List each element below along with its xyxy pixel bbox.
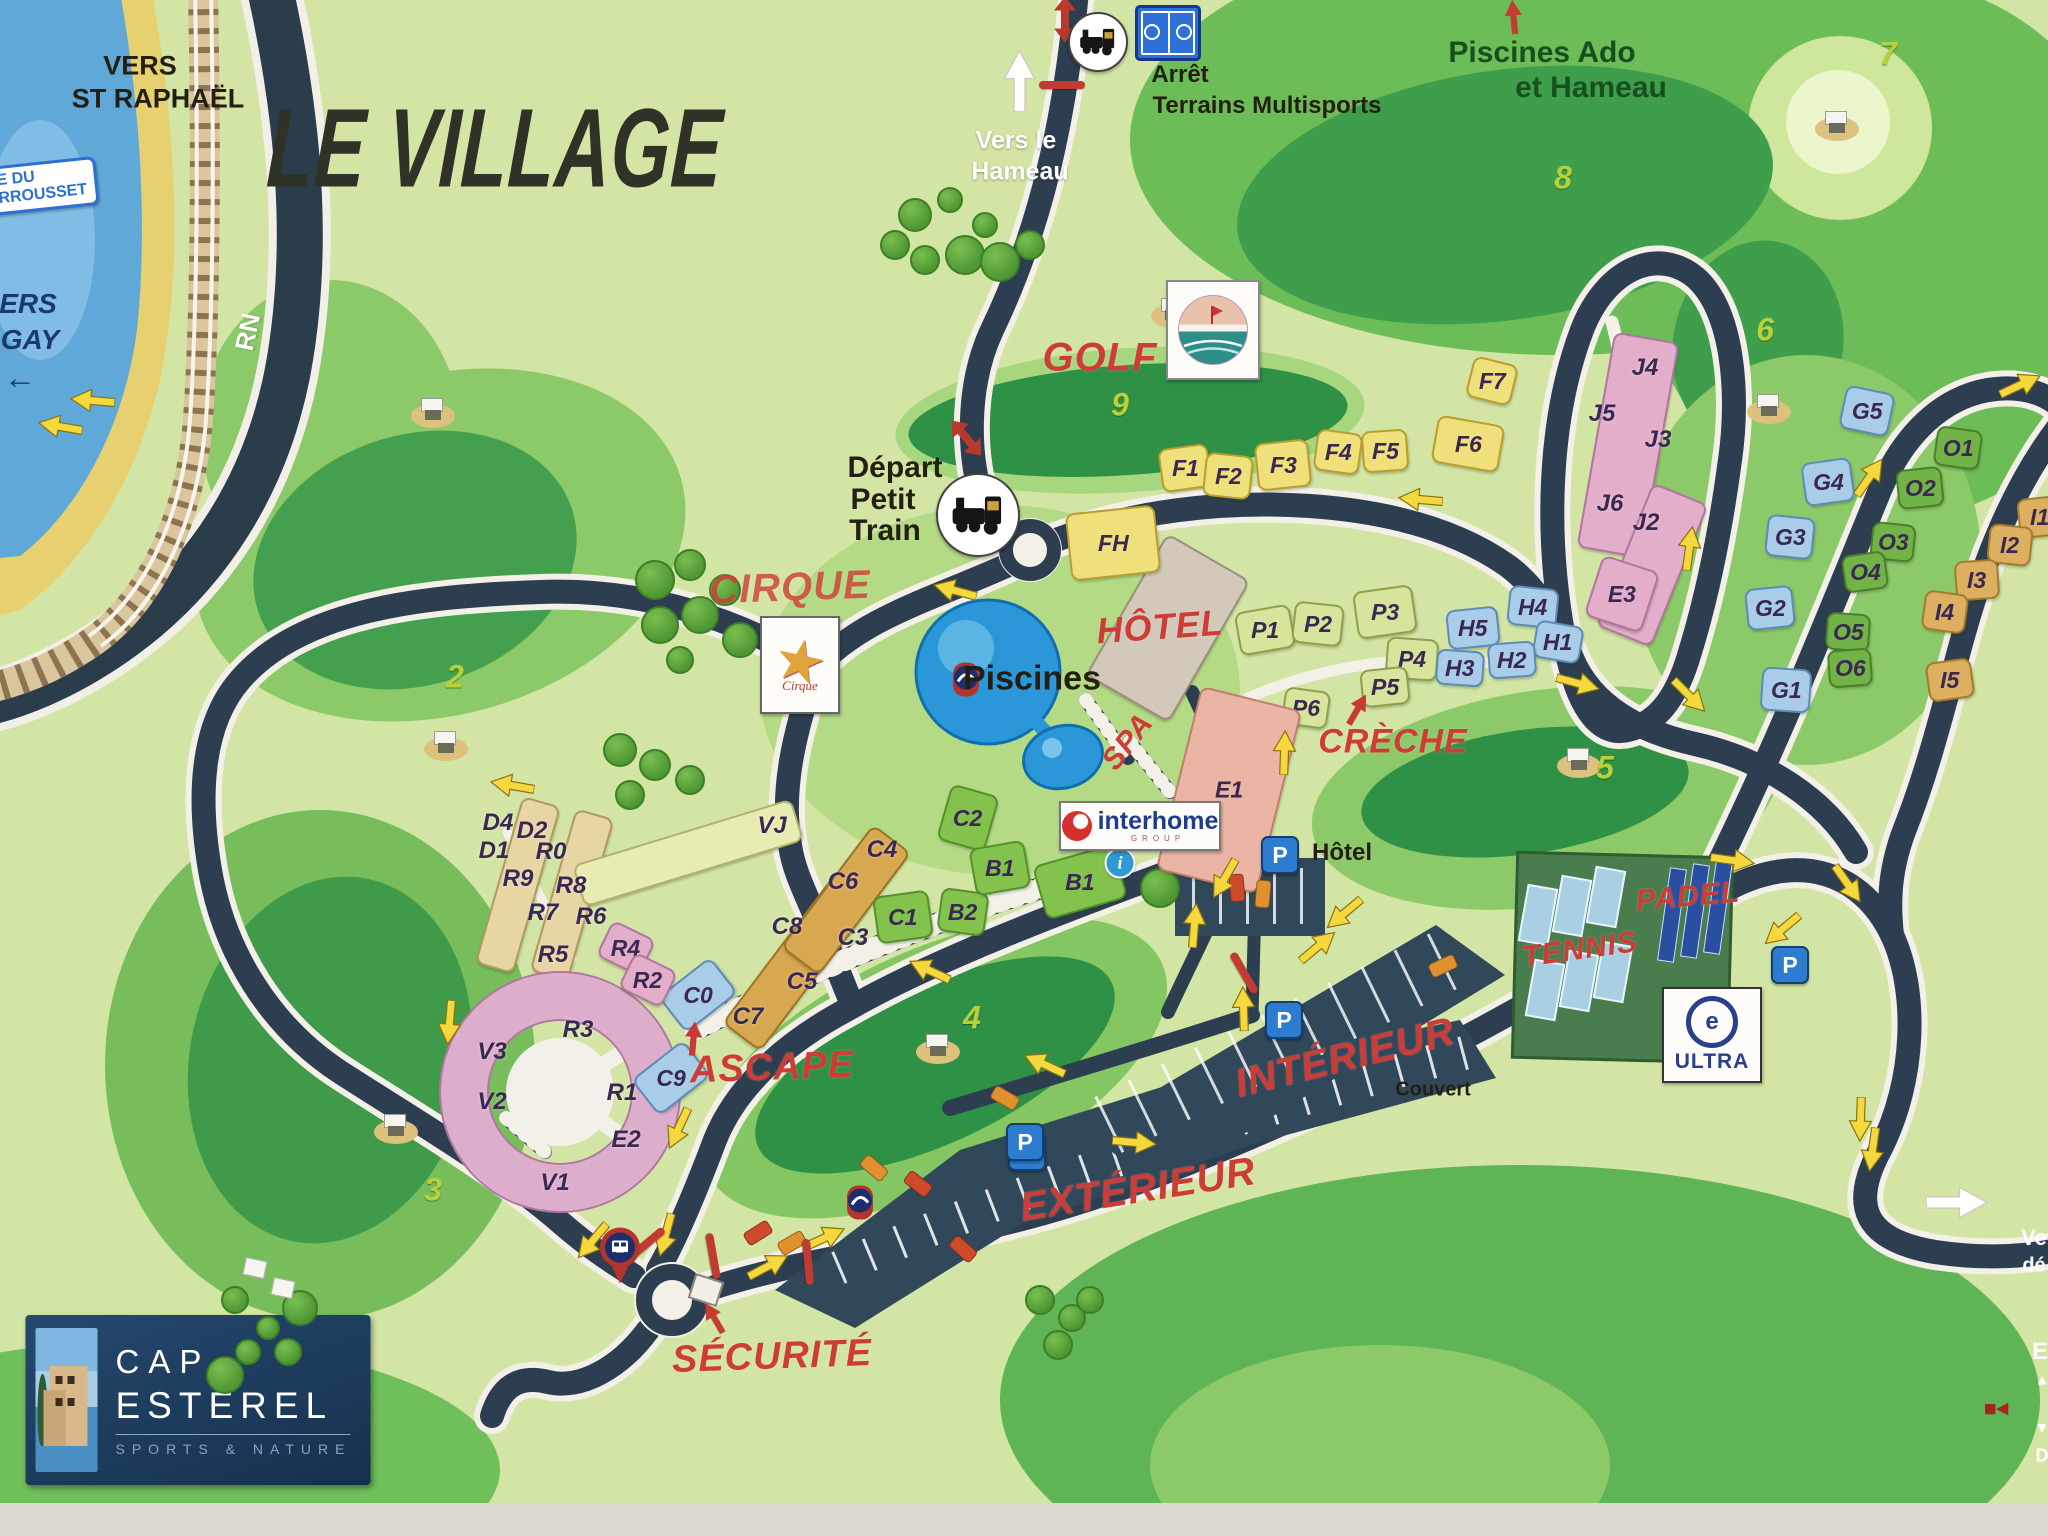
building-label-E2: E2: [611, 1126, 640, 1154]
golf-cart: [372, 1112, 418, 1144]
building-label-O1: O1: [1943, 435, 1974, 462]
building-C1: C1: [872, 889, 934, 944]
building-P3: P3: [1352, 584, 1418, 640]
golf-cart: [1555, 746, 1601, 778]
building-label-R7: R7: [528, 899, 559, 927]
building-label-C5: C5: [787, 968, 818, 996]
legend-fragment: ▼: [2035, 1420, 2048, 1437]
tree: [641, 606, 679, 644]
tree: [1043, 1330, 1073, 1360]
golf-hole-7: 7: [1879, 36, 1897, 73]
golf-cart: [1745, 392, 1791, 424]
legend-fragment: Ve: [2021, 1225, 2047, 1251]
tree: [615, 780, 645, 810]
label-arr-t: Arrêt: [1151, 61, 1208, 89]
building-G1: G1: [1760, 666, 1813, 713]
building-label-C6: C6: [828, 868, 859, 896]
building-G3: G3: [1764, 514, 1816, 561]
tree: [972, 212, 998, 238]
label-vers-agay-part: GAY: [1, 324, 60, 356]
building-F3: F3: [1254, 438, 1313, 491]
info-icon: i: [1105, 848, 1136, 879]
label-cirque: CIRQUE: [708, 563, 871, 614]
route-arrow: [1230, 984, 1263, 1031]
building-H2: H2: [1487, 640, 1537, 679]
golf-club-logo: [1166, 280, 1260, 380]
building-O6: O6: [1827, 648, 1874, 689]
building-label-H4: H4: [1518, 594, 1547, 621]
direction-arrow: [1926, 1185, 1990, 1226]
building-label-O2: O2: [1905, 475, 1936, 502]
label-golf: GOLF: [1042, 336, 1157, 381]
cap-esterel-logo: CAP ESTEREL SPORTS & NATURE: [26, 1315, 371, 1485]
building-label-F2: F2: [1215, 463, 1242, 490]
tree: [274, 1338, 302, 1366]
label-hameau: Hameau: [971, 158, 1068, 187]
circus-star: ★: [769, 631, 831, 693]
train-stop-icon: [936, 473, 1020, 557]
route-arrow: [1271, 728, 1304, 775]
building-label-F7: F7: [1479, 368, 1506, 395]
tree: [945, 235, 985, 275]
building-label-V2: V2: [477, 1088, 506, 1116]
building-label-R1: R1: [607, 1079, 638, 1107]
tree: [206, 1356, 244, 1394]
building-I5: I5: [1924, 657, 1975, 703]
label-train: Train: [849, 514, 921, 548]
building-G2: G2: [1744, 585, 1796, 632]
brand-tagline: SPORTS & NATURE: [116, 1441, 352, 1457]
tree: [635, 560, 675, 600]
building-label-C3: C3: [838, 924, 869, 952]
building-label-R9: R9: [503, 865, 534, 893]
building-label-O5: O5: [1833, 619, 1864, 646]
gate-pin: [840, 1182, 880, 1233]
building-label-G2: G2: [1755, 595, 1786, 622]
label-et-hameau: et Hameau: [1515, 71, 1667, 105]
building-label-F4: F4: [1325, 439, 1352, 466]
paper-edge: [0, 1503, 2048, 1536]
building-label-E1: E1: [1215, 776, 1243, 803]
bus-stop-pin: [597, 1227, 643, 1290]
building-label-O3: O3: [1878, 529, 1909, 556]
building-label-I4: I4: [1935, 599, 1954, 626]
building-label-H1: H1: [1543, 629, 1572, 656]
tree: [1015, 230, 1045, 260]
building-H1: H1: [1531, 619, 1585, 665]
golf-cart: [409, 396, 455, 428]
building-B1: B1: [968, 840, 1031, 897]
resort-map: LE VILLAGE CAP ESTEREL SPORTS & NATURE E…: [0, 0, 2048, 1536]
tree: [880, 230, 910, 260]
legend-fragment: E: [2032, 1338, 2048, 1366]
building-label-P3: P3: [1371, 599, 1399, 626]
building-label-R2: R2: [633, 967, 662, 994]
building-label-F3: F3: [1270, 452, 1297, 479]
circus-logo: ★Cirque: [760, 616, 840, 714]
building-P2: P2: [1291, 601, 1345, 648]
poi-arrow: [1501, 0, 1531, 35]
label-vers-agay-part: ERS: [0, 288, 57, 320]
building-label-G4: G4: [1813, 469, 1844, 496]
building-label-G5: G5: [1852, 398, 1883, 425]
building-label-H3: H3: [1445, 655, 1474, 682]
tree: [980, 242, 1020, 282]
tree: [898, 198, 932, 232]
label-vers-agay-part: ←: [4, 360, 36, 397]
interhome-sub: GROUP: [1131, 834, 1185, 843]
label-piscines-ado: Piscines Ado: [1448, 36, 1635, 70]
tree: [1076, 1286, 1104, 1314]
label-petit: Petit: [850, 483, 915, 517]
building-label-P5: P5: [1371, 674, 1399, 701]
building-label-H2: H2: [1497, 647, 1526, 674]
parking-icon: P: [1265, 1001, 1303, 1039]
building-label-C8: C8: [772, 913, 803, 941]
label-terrains-multisports: Terrains Multisports: [1153, 92, 1382, 120]
building-O4: O4: [1841, 550, 1890, 594]
label-h-tel: HÔTEL: [1095, 602, 1225, 653]
tree: [675, 765, 705, 795]
golf-hole-3: 3: [424, 1172, 442, 1209]
building-label-J3: J3: [1645, 426, 1672, 454]
building-label-P2: P2: [1304, 610, 1332, 637]
building-label-F6: F6: [1455, 431, 1482, 458]
parking-icon: P: [1771, 946, 1809, 984]
brand-divider: [116, 1434, 351, 1435]
building-label-C1: C1: [888, 904, 917, 931]
tree: [639, 749, 671, 781]
tree: [603, 733, 637, 767]
map-title: LE VILLAGE: [264, 84, 725, 213]
label-cr-che: CRÈCHE: [1318, 723, 1468, 762]
tree: [256, 1316, 280, 1340]
building-label-R8: R8: [556, 872, 587, 900]
route-arrow: [1396, 480, 1445, 515]
building-label-R0: R0: [536, 838, 567, 866]
route-arrow: [1111, 1128, 1160, 1163]
interhome-text: interhome: [1098, 809, 1219, 834]
building-label-C7: C7: [733, 1003, 764, 1031]
tree: [1025, 1285, 1055, 1315]
golf-cart: [914, 1032, 960, 1064]
route-arrow: [430, 999, 465, 1048]
tree: [221, 1286, 249, 1314]
label-couvert: Couvert: [1395, 1079, 1471, 1102]
building-label-C2: C2: [953, 805, 982, 832]
building-label-F1: F1: [1172, 455, 1199, 482]
route-arrow: [1673, 523, 1710, 573]
ultra-mark: e: [1686, 996, 1738, 1048]
building-label-C9: C9: [656, 1065, 685, 1092]
tree: [666, 646, 694, 674]
route-arrow: [1180, 901, 1215, 950]
golf-cart: [1813, 109, 1859, 141]
tree: [722, 622, 758, 658]
parking-icon: P: [1006, 1123, 1044, 1161]
ultra-logo: eULTRA: [1662, 987, 1762, 1083]
building-O1: O1: [1932, 425, 1983, 471]
car: [1254, 879, 1271, 908]
building-F5: F5: [1361, 428, 1410, 473]
building-label-D1: D1: [479, 837, 510, 865]
label-d-part: Départ: [847, 451, 942, 485]
golf-hole-8: 8: [1554, 160, 1572, 197]
label-vers: VERS: [103, 51, 177, 82]
building-label-O6: O6: [1835, 655, 1866, 682]
golf-cart: [422, 729, 468, 761]
building-label-FH: FH: [1098, 530, 1129, 557]
building-label-R6: R6: [576, 903, 607, 931]
building-O5: O5: [1825, 612, 1872, 653]
building-F4: F4: [1312, 428, 1363, 476]
building-label-C4: C4: [867, 836, 898, 864]
building-label-E3: E3: [1608, 580, 1636, 607]
building-label-H5: H5: [1458, 615, 1487, 642]
building-label-R5: R5: [538, 941, 569, 969]
golf-hole-9: 9: [1111, 387, 1129, 424]
label-ascape: ASCAPE: [689, 1044, 855, 1093]
building-label-B1: B1: [1065, 869, 1094, 896]
golf-hole-5: 5: [1596, 750, 1614, 787]
multisport-court-icon: [1135, 5, 1201, 61]
road-barrier: [1039, 81, 1085, 89]
building-FH: FH: [1065, 504, 1162, 581]
building-label-I3: I3: [1967, 567, 1986, 594]
brand-photo: [36, 1328, 98, 1472]
golf-hole-4: 4: [963, 1000, 981, 1037]
building-label-G3: G3: [1775, 524, 1806, 551]
building-label-VJ: VJ: [757, 812, 786, 840]
building-label-R3: R3: [563, 1016, 594, 1044]
building-label-V1: V1: [540, 1169, 569, 1197]
building-label-V3: V3: [477, 1038, 506, 1066]
parking-icon: P: [1261, 836, 1299, 874]
building-label-J6: J6: [1597, 490, 1624, 518]
golf-hole-6: 6: [1756, 312, 1774, 349]
tree: [1140, 868, 1180, 908]
label-vers-le: Vers le: [976, 127, 1057, 156]
building-label-J4: J4: [1632, 354, 1659, 382]
interhome-logo: interhomeGROUP: [1059, 801, 1221, 851]
direction-arrow: [1002, 48, 1043, 112]
label-h-tel: Hôtel: [1312, 839, 1372, 867]
building-label-D4: D4: [483, 809, 514, 837]
tree: [674, 549, 706, 581]
legend-fragment: dé: [2022, 1255, 2045, 1278]
building-label-I1: I1: [2030, 504, 2048, 531]
building-label-I5: I5: [1940, 667, 1959, 694]
interhome-mark: [1062, 811, 1092, 841]
building-G4: G4: [1800, 457, 1856, 508]
building-label-F5: F5: [1372, 438, 1399, 465]
building-H3: H3: [1435, 648, 1485, 687]
building-label-G1: G1: [1771, 677, 1802, 704]
building-label-B2: B2: [948, 899, 977, 926]
building-label-C0: C0: [683, 982, 712, 1009]
building-O2: O2: [1895, 466, 1945, 511]
legend-fragment: ◼◀: [1984, 1399, 2008, 1417]
label-piscines: Piscines: [963, 660, 1101, 699]
building-label-O4: O4: [1850, 559, 1881, 586]
route-arrow: [1851, 1125, 1888, 1175]
building-label-I2: I2: [2000, 532, 2019, 559]
label-s-curit-: SÉCURITÉ: [671, 1332, 873, 1382]
tree: [937, 187, 963, 213]
building-label-P1: P1: [1251, 617, 1279, 644]
building-F2: F2: [1202, 452, 1254, 501]
ultra-text: ULTRA: [1675, 1050, 1750, 1074]
label-st-rapha-l: ST RAPHAËL: [72, 84, 245, 115]
legend-fragment: ▲: [2035, 1372, 2048, 1389]
building-label-J2: J2: [1633, 509, 1660, 537]
tree: [910, 245, 940, 275]
building-label-B1: B1: [985, 855, 1014, 882]
golf-hole-2: 2: [446, 659, 464, 696]
train-stop-icon: [1068, 12, 1128, 72]
building-label-J5: J5: [1589, 400, 1616, 428]
building-I4: I4: [1920, 589, 1969, 635]
legend-fragment: D: [2036, 1446, 2048, 1467]
